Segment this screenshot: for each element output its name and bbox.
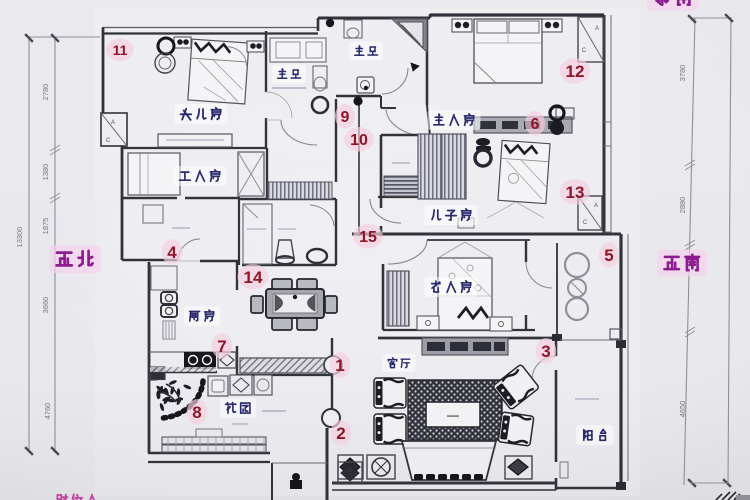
svg-text:A: A xyxy=(111,120,115,126)
svg-text:5: 5 xyxy=(604,246,613,265)
svg-text:1380: 1380 xyxy=(41,164,50,181)
svg-text:3660: 3660 xyxy=(41,297,50,314)
svg-text:3: 3 xyxy=(541,342,550,361)
svg-text:15: 15 xyxy=(359,229,377,246)
svg-text:9: 9 xyxy=(341,109,350,126)
svg-text:4: 4 xyxy=(167,243,177,262)
svg-text:2880: 2880 xyxy=(678,197,687,214)
svg-text:A: A xyxy=(595,26,599,32)
svg-text:3780: 3780 xyxy=(678,65,687,82)
svg-text:A: A xyxy=(594,203,598,209)
svg-text:2780: 2780 xyxy=(41,84,50,101)
svg-text:12: 12 xyxy=(566,62,585,81)
svg-text:10: 10 xyxy=(350,132,368,149)
svg-text:C: C xyxy=(106,138,111,144)
svg-text:4650: 4650 xyxy=(678,401,687,418)
svg-text:1875: 1875 xyxy=(41,218,50,235)
svg-text:8: 8 xyxy=(192,403,201,422)
svg-text:13: 13 xyxy=(566,183,585,202)
svg-text:6: 6 xyxy=(531,116,540,133)
svg-text:11: 11 xyxy=(113,42,128,58)
svg-text:14: 14 xyxy=(244,268,263,287)
svg-text:1: 1 xyxy=(335,356,344,375)
svg-text:2: 2 xyxy=(336,424,345,443)
svg-text:▬▬: ▬▬ xyxy=(447,413,459,419)
svg-text:13300: 13300 xyxy=(15,227,24,248)
svg-text:4760: 4760 xyxy=(43,403,52,420)
svg-text:C: C xyxy=(582,48,587,54)
svg-text:C: C xyxy=(583,220,588,226)
svg-text:7: 7 xyxy=(217,337,226,356)
